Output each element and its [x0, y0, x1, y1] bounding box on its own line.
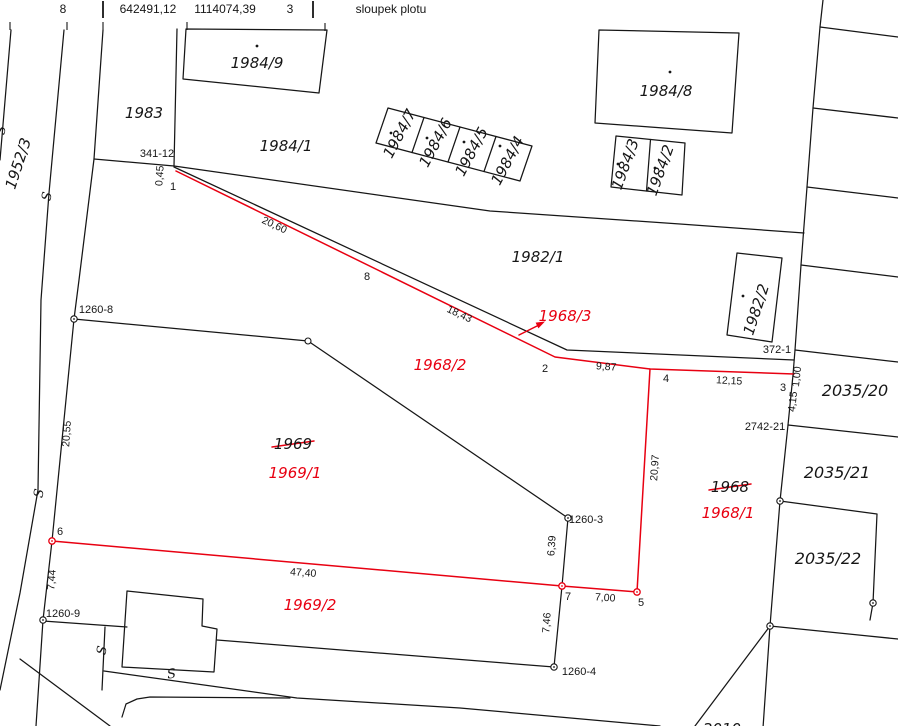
s-symbol: S [166, 666, 177, 682]
parcel-label-1984-1: 1984/1 [260, 137, 313, 155]
distance-7-44: 7,44 [45, 569, 58, 590]
building-outline-sw [122, 591, 217, 672]
survey-drawing: 8 642491,12 1114074,39 3 sloupek plotu [0, 0, 898, 726]
table-cell-note: sloupek plotu [356, 2, 427, 16]
point-id-1260-3: 1260-3 [569, 514, 603, 526]
parcel-label-1969-cancelled: 1969 [274, 435, 312, 453]
point-marker-dot [769, 625, 771, 627]
table-cell-x: 1114074,39 [194, 2, 256, 16]
fence-line-vertical [102, 627, 105, 690]
point-marker-corner-1969 [305, 338, 311, 344]
point-id-1260-4: 1260-4 [562, 666, 596, 678]
distance-1-00: 1,00 [790, 366, 804, 388]
parcel-label-1969-1: 1969/1 [269, 464, 322, 482]
building-dot [499, 145, 502, 148]
boundary-341-12 [94, 159, 174, 166]
parcel-label-1982-1: 1982/1 [512, 248, 565, 266]
distance-6-39: 6,39 [545, 535, 558, 556]
distance-0-45: 0,45 [153, 165, 166, 186]
table-cell-point: 8 [60, 2, 67, 16]
distance-47-40: 47,40 [290, 566, 317, 580]
parcel-label-1968-1: 1968/1 [702, 504, 755, 522]
point-number-6: 6 [57, 526, 63, 538]
parcel-label-1984-8: 1984/8 [640, 82, 693, 100]
east-branch-3 [807, 187, 898, 198]
table-cell-y: 642491,12 [120, 2, 177, 16]
parcel-label-1969-2: 1969/2 [284, 596, 337, 614]
point-id-2742-21: 2742-21 [745, 421, 785, 433]
parcel-label-2010-clipped: 2010 [703, 720, 741, 726]
point-number-1: 1 [170, 181, 176, 193]
point-marker-dot [42, 619, 44, 621]
point-marker-dot [872, 602, 874, 604]
point-marker-dot [553, 666, 555, 668]
table-cell-code: 3 [287, 2, 294, 16]
new-boundary-1-2-3 [176, 171, 794, 374]
point-number-5: 5 [638, 597, 644, 609]
parcel-label-1983: 1983 [125, 104, 163, 122]
parcel-label-2035-22: 2035/22 [795, 549, 861, 568]
east-branch-4 [801, 265, 898, 277]
parcel-label-1984-5: 1984/5 [451, 124, 492, 179]
distance-4-15: 4,15 [786, 391, 800, 413]
distance-12-15: 12,15 [716, 374, 743, 387]
point-id-1260-9: 1260-9 [46, 608, 80, 620]
east-branch-8 [770, 626, 898, 639]
building-dot [742, 295, 745, 298]
point-number-3: 3 [780, 382, 786, 394]
road-line-west-1 [0, 30, 11, 160]
parcel-label-1968-2: 1968/2 [414, 356, 467, 374]
parcel-label-1984-4: 1984/4 [487, 133, 528, 188]
parcel-label-1984-9: 1984/9 [231, 54, 284, 72]
new-point-dot [636, 591, 638, 593]
boundary-parcel-1969 [74, 319, 568, 667]
boundary-old-1968-1969 [174, 167, 794, 360]
distance-20-60: 20,60 [260, 214, 289, 236]
boundary-southeast [695, 626, 770, 726]
distance-7-46: 7,46 [540, 612, 553, 633]
parcel-label-2035-20: 2035/20 [822, 381, 888, 400]
point-id-labels: 341-12 372-1 2742-21 1260-8 1260-3 1260-… [46, 148, 791, 678]
red-new-boundaries [52, 171, 794, 592]
s-symbols: S S S S S [0, 125, 177, 683]
point-number-4: 4 [663, 373, 669, 385]
fence-line-horizontal [43, 621, 127, 627]
road-line-east [763, 0, 823, 726]
building-dot [256, 45, 259, 48]
building-dot [669, 71, 672, 74]
boundary-1983-1984 [174, 29, 177, 166]
distance-20-55: 20,55 [60, 420, 74, 447]
distance-9-87: 9,87 [596, 360, 617, 373]
parcel-labels: 1952/3 1983 1984/9 1984/1 1984/7 1984/6 … [2, 54, 889, 726]
new-point-dot [561, 585, 563, 587]
new-point-dot [51, 540, 53, 542]
cadastral-map-canvas: 8 642491,12 1114074,39 3 sloupek plotu [0, 0, 898, 726]
distance-20-97: 20,97 [648, 454, 662, 481]
distance-18-43: 18,43 [445, 303, 474, 325]
point-number-8: 8 [364, 271, 370, 283]
line-southwest-diagonal [20, 659, 110, 726]
point-marker-dot [779, 500, 781, 502]
east-branch-1 [820, 27, 898, 37]
boundary-south-curve [122, 697, 290, 717]
s-symbol: S [0, 125, 10, 136]
leader-arrow-shaft-1968-3 [519, 325, 539, 335]
distance-labels: 0,45 20,60 18,43 9,87 12,15 1,00 4,15 20… [45, 165, 804, 633]
parcel-label-1982-2: 1982/2 [740, 282, 773, 338]
parcel-label-1968-cancelled: 1968 [711, 478, 749, 496]
s-symbol: S [94, 645, 110, 656]
point-marker-dot [73, 318, 75, 320]
parcel-label-1952-3: 1952/3 [2, 136, 35, 192]
boundary-2035-20-21 [788, 425, 898, 437]
distance-7-00: 7,00 [595, 591, 616, 604]
point-number-2: 2 [542, 363, 548, 375]
point-number-7: 7 [565, 591, 571, 603]
parcel-label-2035-21: 2035/21 [804, 463, 870, 482]
east-branch-5 [795, 350, 898, 362]
parcel-label-1968-3: 1968/3 [539, 307, 592, 325]
boundary-south-1 [104, 671, 660, 726]
s-symbol: S [39, 191, 55, 202]
east-branch-2 [813, 108, 898, 118]
point-table-row[interactable]: 8 642491,12 1114074,39 3 sloupek plotu [10, 1, 426, 31]
point-id-1260-8: 1260-8 [79, 304, 113, 316]
point-id-341-12: 341-12 [140, 148, 174, 160]
s-symbol: S [31, 488, 47, 499]
point-id-372-1: 372-1 [763, 344, 791, 356]
